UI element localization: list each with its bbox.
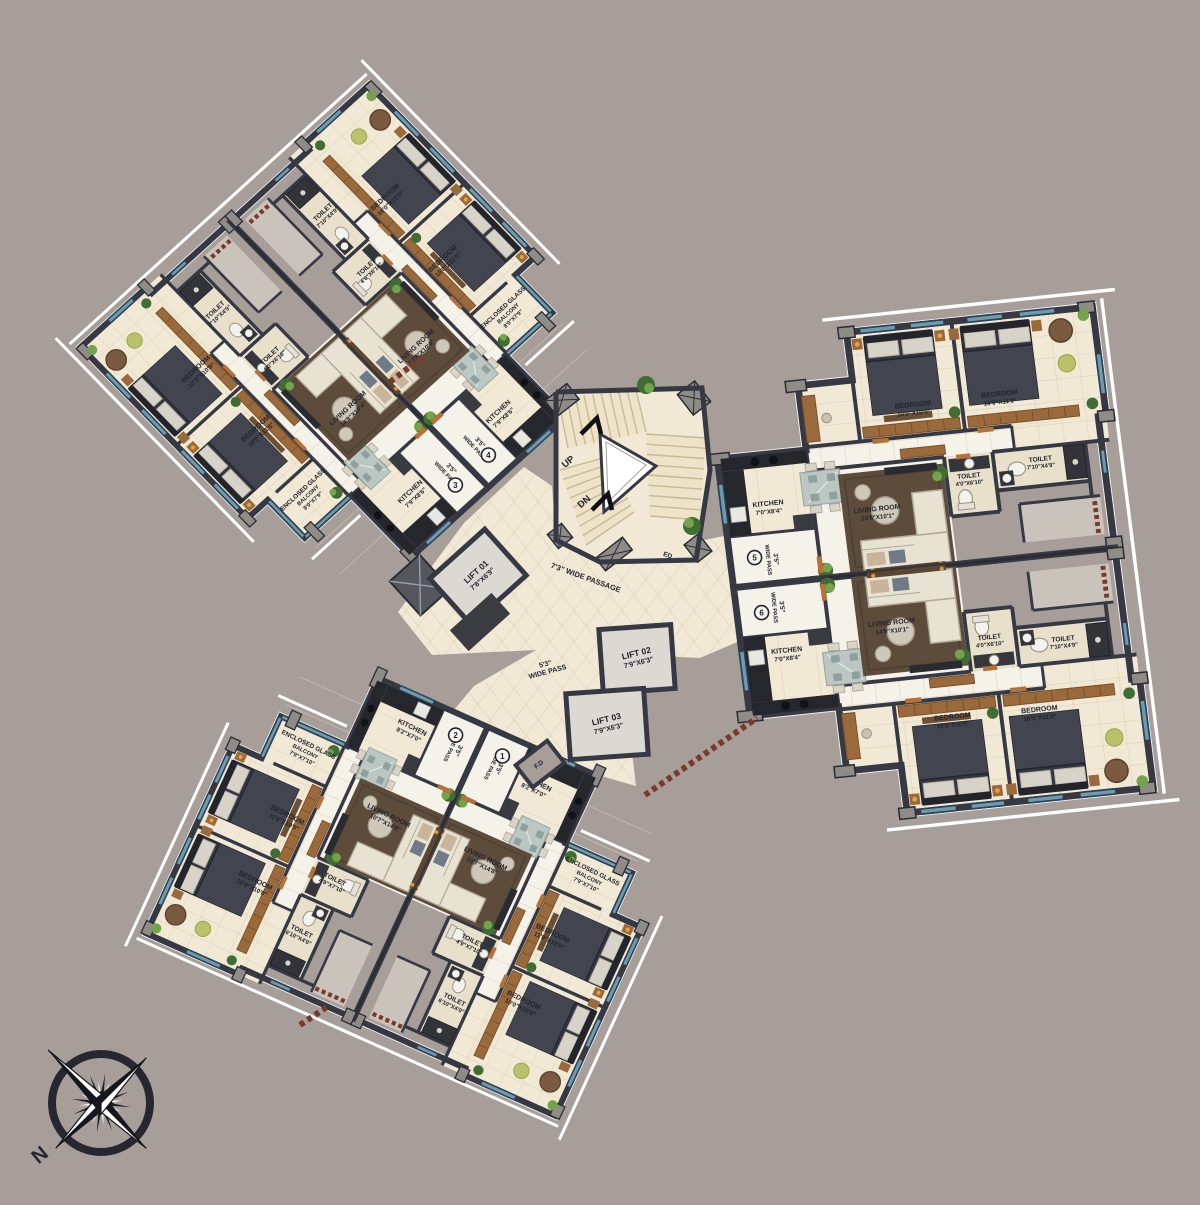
svg-text:6: 6 bbox=[759, 609, 764, 618]
svg-text:1: 1 bbox=[500, 752, 505, 761]
svg-text:4: 4 bbox=[486, 451, 491, 460]
svg-text:5: 5 bbox=[752, 554, 757, 563]
svg-text:3: 3 bbox=[453, 481, 458, 490]
svg-text:2: 2 bbox=[453, 731, 458, 740]
